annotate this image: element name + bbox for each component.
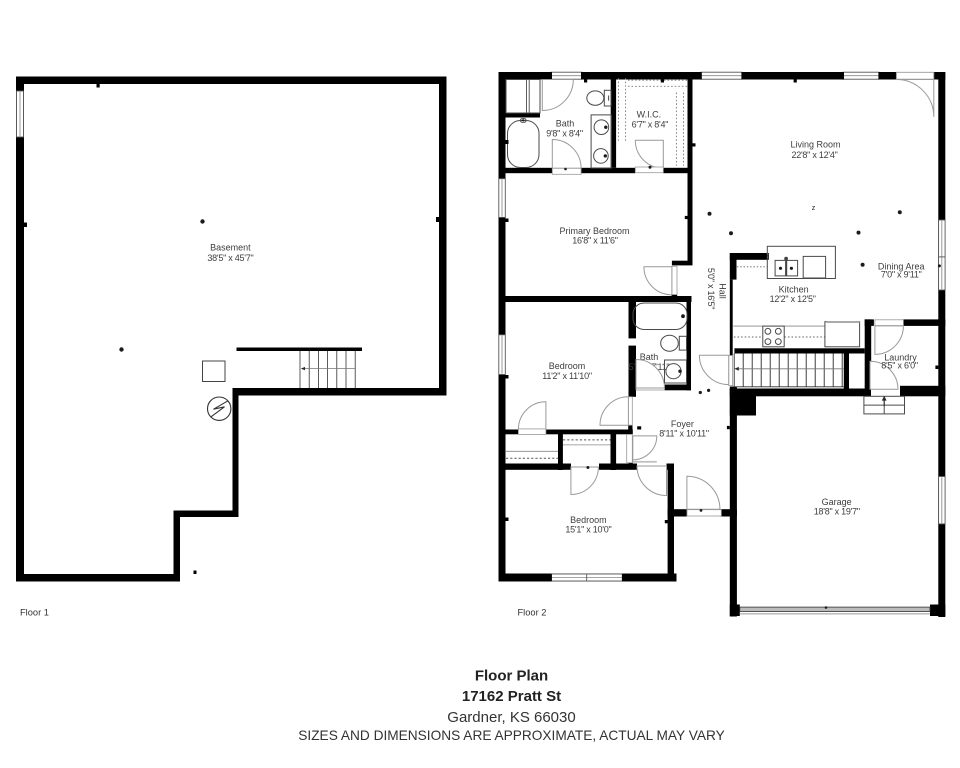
svg-text:Floor 2: Floor 2	[518, 608, 547, 618]
svg-text:Bedroom: Bedroom	[549, 361, 586, 371]
svg-text:Kitchen: Kitchen	[779, 285, 809, 295]
svg-text:8'5" x 6'0": 8'5" x 6'0"	[881, 361, 918, 371]
svg-text:Hall: Hall	[718, 283, 728, 299]
svg-text:15'1" x 10'0": 15'1" x 10'0"	[565, 525, 611, 535]
svg-text:38'5" x 45'7": 38'5" x 45'7"	[207, 253, 253, 263]
svg-text:17162 Pratt St: 17162 Pratt St	[462, 688, 561, 705]
svg-text:Basement: Basement	[210, 243, 251, 253]
svg-text:16'8" x 11'6": 16'8" x 11'6"	[572, 235, 617, 245]
svg-text:Floor 1: Floor 1	[20, 608, 49, 618]
svg-text:SIZES AND DIMENSIONS ARE APPRO: SIZES AND DIMENSIONS ARE APPROXIMATE, AC…	[298, 728, 724, 743]
svg-text:z: z	[812, 205, 816, 212]
svg-text:18'8" x 19'7": 18'8" x 19'7"	[814, 507, 860, 517]
svg-text:Gardner, KS 66030: Gardner, KS 66030	[447, 709, 575, 726]
svg-text:5'0" x 16'5": 5'0" x 16'5"	[706, 268, 716, 309]
svg-text:W.I.C.: W.I.C.	[637, 110, 662, 120]
svg-text:12'2" x 12'5": 12'2" x 12'5"	[770, 294, 816, 304]
svg-text:Bath: Bath	[556, 118, 575, 128]
svg-text:22'8" x 12'4": 22'8" x 12'4"	[791, 150, 837, 160]
svg-text:7'0" x 9'11": 7'0" x 9'11"	[881, 270, 922, 280]
svg-text:11'2" x 11'10": 11'2" x 11'10"	[542, 371, 592, 381]
svg-text:Floor Plan: Floor Plan	[475, 668, 548, 685]
svg-text:6'7" x 8'4": 6'7" x 8'4"	[632, 119, 669, 129]
svg-text:9'8" x 8'4": 9'8" x 8'4"	[546, 129, 583, 139]
svg-text:Living Room: Living Room	[790, 140, 840, 150]
svg-text:8'11" x 10'11": 8'11" x 10'11"	[659, 429, 709, 439]
